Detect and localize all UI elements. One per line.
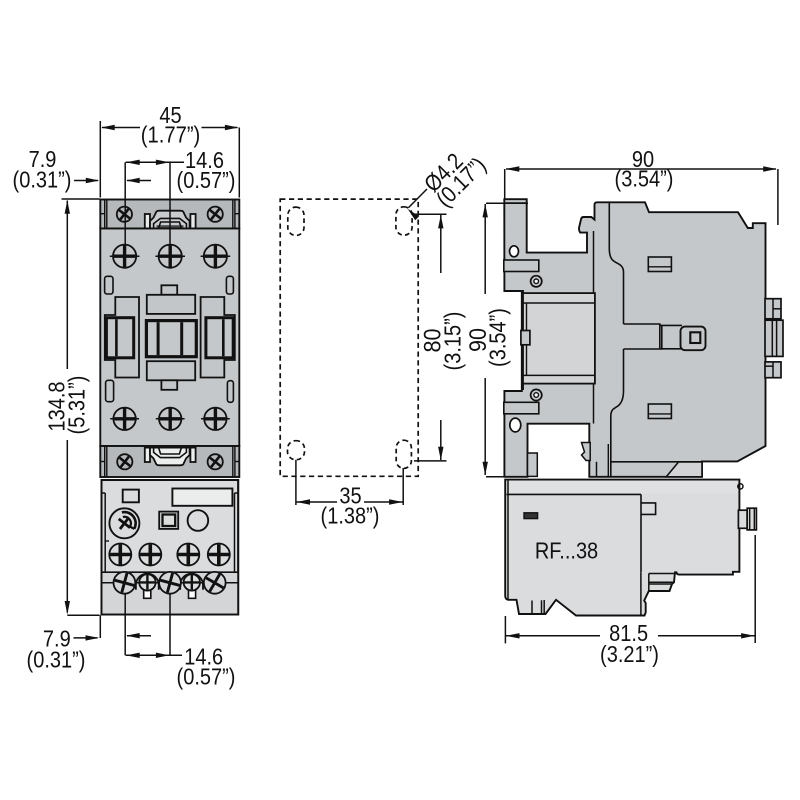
svg-text:(0.31”): (0.31”) bbox=[13, 166, 72, 193]
svg-text:(5.31”): (5.31”) bbox=[63, 376, 90, 435]
svg-text:RF...38: RF...38 bbox=[535, 537, 598, 564]
svg-text:(3.21”): (3.21”) bbox=[600, 640, 659, 667]
svg-text:(0.57”): (0.57”) bbox=[177, 167, 236, 194]
svg-text:(3.54”): (3.54”) bbox=[484, 308, 511, 367]
svg-text:(3.54”): (3.54”) bbox=[615, 165, 674, 192]
svg-text:(3.15”): (3.15”) bbox=[439, 312, 466, 371]
svg-text:(0.57”): (0.57”) bbox=[177, 663, 236, 690]
svg-text:(0.31”): (0.31”) bbox=[27, 646, 86, 673]
svg-text:(1.38”): (1.38”) bbox=[321, 502, 380, 529]
svg-text:(1.77”): (1.77”) bbox=[141, 121, 201, 148]
